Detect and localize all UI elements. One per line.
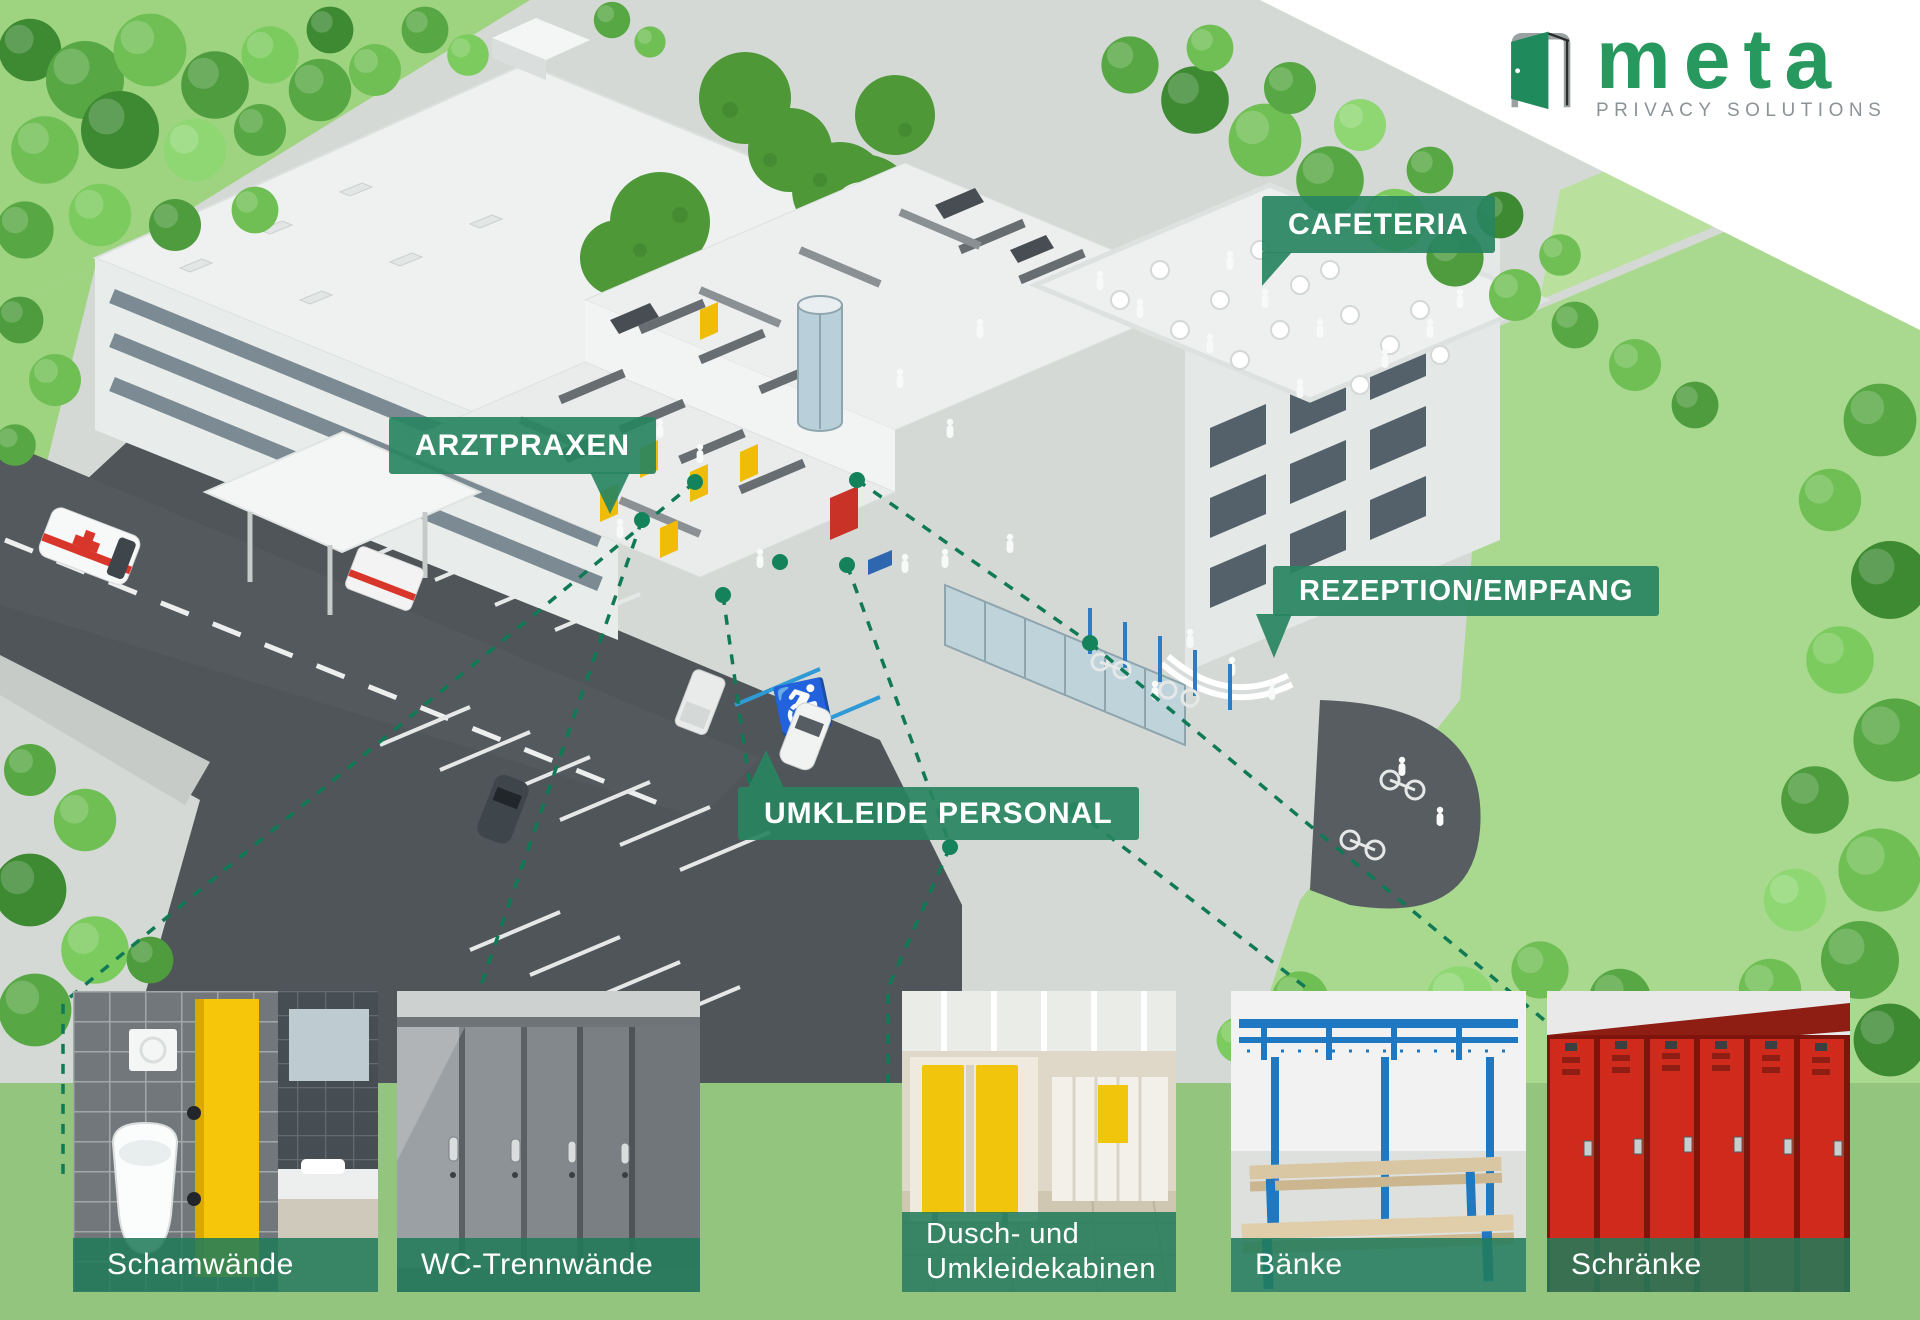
yellow-partition xyxy=(195,999,259,1277)
caption-wc-trennwaende: WC-Trennwände xyxy=(397,1238,700,1292)
caption-schraenke: Schränke xyxy=(1547,1238,1850,1292)
door-icon xyxy=(1498,24,1582,112)
meta-logo: meta PRIVACY SOLUTIONS xyxy=(1498,24,1898,119)
caption-baenke: Bänke xyxy=(1231,1238,1526,1292)
infographic-page: ♿ xyxy=(0,0,1920,1320)
label-cafeteria[interactable]: CAFETERIA xyxy=(1262,196,1495,253)
logo-brand-text: meta xyxy=(1596,24,1886,94)
label-rezeption-pointer xyxy=(1256,614,1292,658)
logo-tagline: PRIVACY SOLUTIONS xyxy=(1596,100,1886,122)
cubicle-doors xyxy=(397,1027,700,1268)
label-umkleide-pointer xyxy=(748,750,784,788)
glass-elevator xyxy=(798,296,842,431)
lockers-right xyxy=(1052,1077,1168,1201)
label-umkleide-text: UMKLEIDE PERSONAL xyxy=(764,797,1113,831)
label-umkleide[interactable]: UMKLEIDE PERSONAL xyxy=(738,787,1139,840)
product-card-schraenke[interactable]: Schränke xyxy=(1547,991,1850,1292)
label-rezeption-text: REZEPTION/EMPFANG xyxy=(1299,575,1633,608)
changing-cubicles xyxy=(910,1057,1038,1227)
label-cafeteria-text: CAFETERIA xyxy=(1288,208,1469,242)
label-rezeption[interactable]: REZEPTION/EMPFANG xyxy=(1273,566,1659,616)
product-card-schamwaende[interactable]: Schamwände xyxy=(73,991,378,1292)
product-card-dusch-umkleidekabinen[interactable]: Dusch- und Umkleidekabinen xyxy=(902,991,1176,1292)
caption-schamwaende: Schamwände xyxy=(73,1238,378,1292)
label-arztpraxen-pointer xyxy=(590,472,630,514)
label-arztpraxen-text: ARZTPRAXEN xyxy=(415,429,630,463)
label-cafeteria-pointer xyxy=(1262,252,1292,286)
label-arztpraxen[interactable]: ARZTPRAXEN xyxy=(389,417,656,474)
product-card-baenke[interactable]: Bänke xyxy=(1231,991,1526,1292)
product-card-wc-trennwaende[interactable]: WC-Trennwände xyxy=(397,991,700,1292)
caption-dusch-umkleidekabinen: Dusch- und Umkleidekabinen xyxy=(902,1212,1176,1292)
